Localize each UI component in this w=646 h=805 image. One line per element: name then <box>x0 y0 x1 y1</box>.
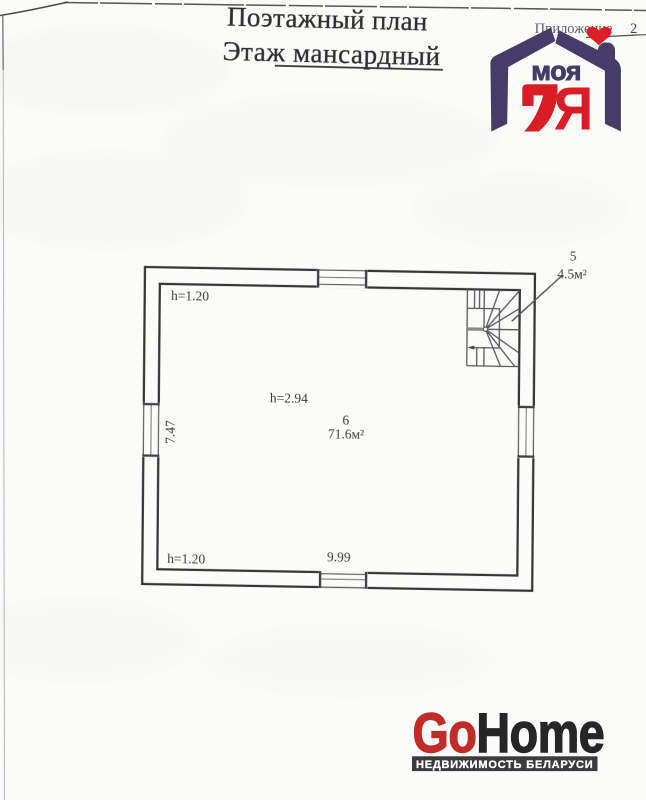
svg-text:GoHome: GoHome <box>413 701 605 764</box>
svg-text:Этаж мансардный: Этаж мансардный <box>222 36 441 71</box>
svg-text:9.99: 9.99 <box>327 549 351 564</box>
svg-text:4.5м²: 4.5м² <box>557 266 587 282</box>
svg-text:71.6м²: 71.6м² <box>328 426 364 442</box>
svg-text:НЕДВИЖИМОСТЬ БЕЛАРУСИ: НЕДВИЖИМОСТЬ БЕЛАРУСИ <box>416 759 593 771</box>
svg-text:h=2.94: h=2.94 <box>270 390 308 406</box>
svg-text:5: 5 <box>570 249 577 264</box>
svg-text:7.47: 7.47 <box>162 420 177 444</box>
svg-text:Поэтажный план: Поэтажный план <box>227 2 428 37</box>
svg-text:Я: Я <box>554 75 593 143</box>
svg-text:h=1.20: h=1.20 <box>167 551 205 567</box>
svg-text:h=1.20: h=1.20 <box>171 288 209 304</box>
